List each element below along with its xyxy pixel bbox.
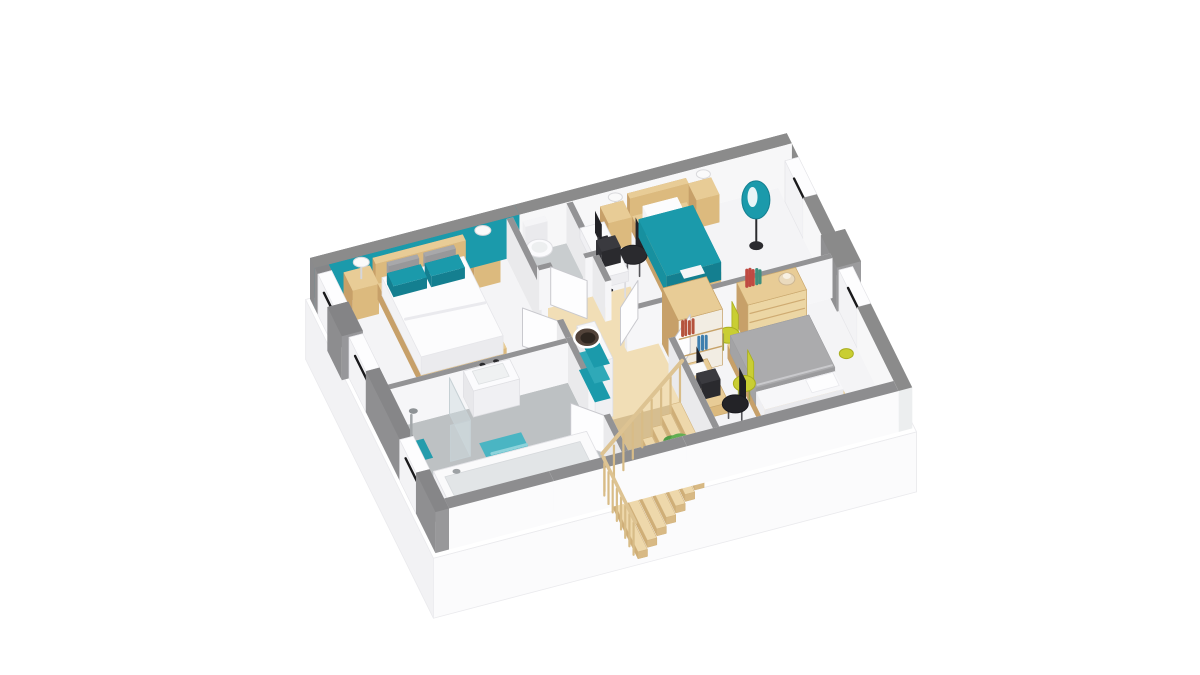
lamp-master-left (353, 257, 369, 267)
toy-ball (839, 349, 853, 359)
floor-plan-render (0, 0, 1200, 675)
toilet-seat (532, 242, 548, 253)
dresser-jar-lid (783, 273, 791, 279)
lamp-bedroom2-right (696, 170, 710, 179)
floor-lamp-base (749, 241, 763, 250)
dresser-books-red (747, 269, 753, 286)
bathtub-faucet (453, 469, 461, 474)
wall-mirror-glass (580, 332, 595, 343)
dresser-books-green (757, 270, 760, 284)
bookcase-books-bottom (699, 336, 706, 350)
floor-plan-stage (0, 0, 1200, 675)
lamp-bedroom2-left (608, 193, 622, 202)
shower-glass-return (451, 420, 471, 461)
shower-head (409, 408, 418, 414)
lamp-master-right (475, 225, 491, 235)
floor-lamp-shade-highlight (748, 187, 758, 207)
office-chair-bedroom3-seat (722, 395, 748, 413)
